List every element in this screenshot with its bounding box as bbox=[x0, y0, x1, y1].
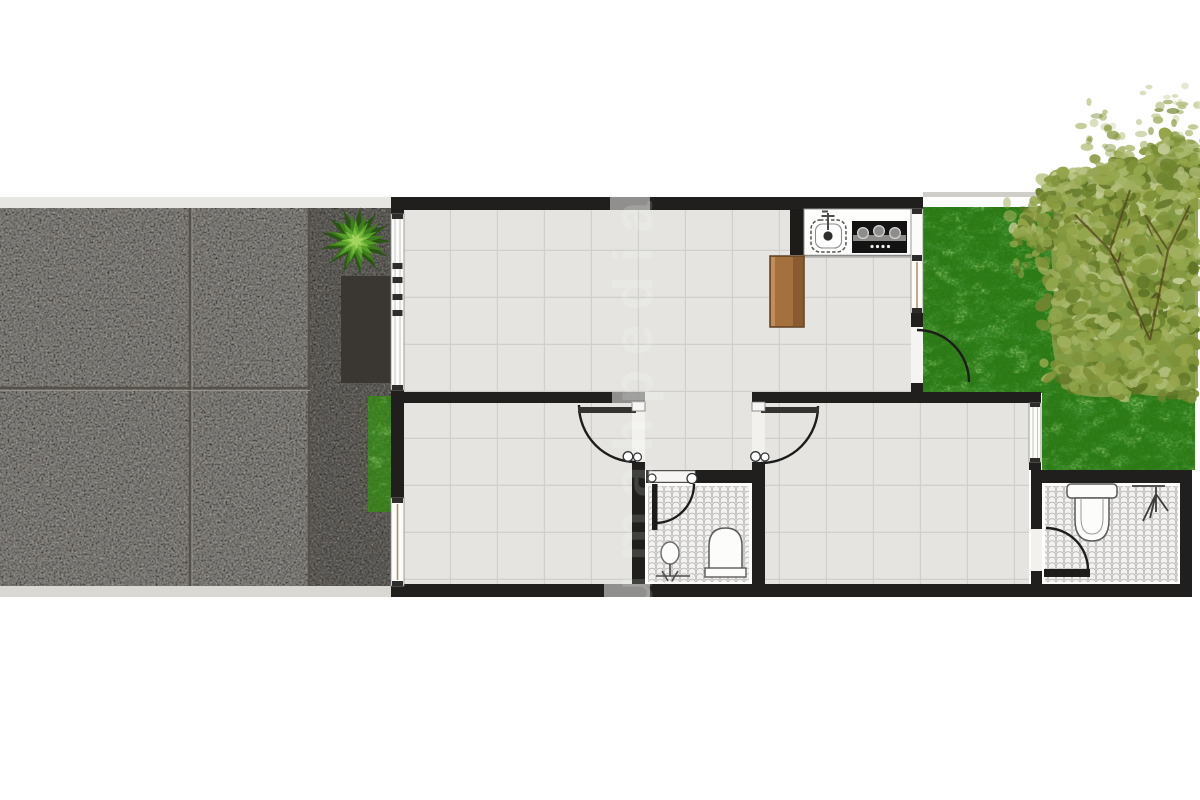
svg-text:rumahpedia: rumahpedia bbox=[601, 188, 664, 645]
